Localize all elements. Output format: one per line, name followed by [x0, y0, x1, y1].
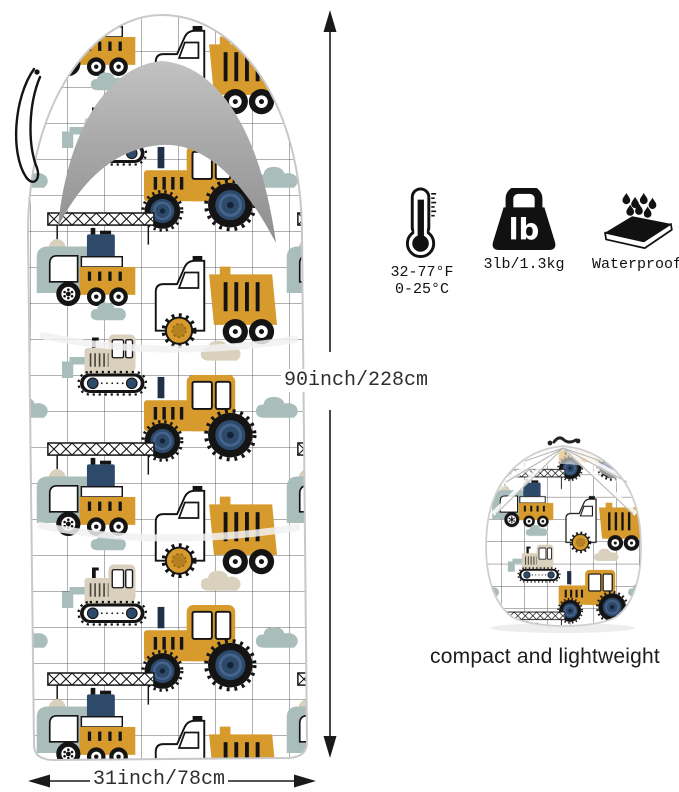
sleeping-bag-image [10, 5, 320, 767]
sack-drawstring-knot [554, 438, 576, 442]
drawstring-knot [34, 69, 39, 74]
temperature-range-f: 32-77°F [390, 264, 453, 281]
stuff-sack-image [478, 430, 648, 635]
weight-label: 3lb/1.3kg [478, 256, 570, 273]
waterproof-icon [598, 192, 676, 252]
temperature-feature: 32-77°F 0-25°C [383, 186, 461, 298]
waterproof-feature: Waterproof [591, 192, 679, 273]
waterproof-label: Waterproof [591, 256, 679, 273]
weight-feature: lb 3lb/1.3kg [478, 188, 570, 273]
weight-unit-text: lb [509, 212, 540, 246]
horizontal-dimension-label: 31inch/78cm [90, 768, 228, 791]
thermometer-icon [401, 186, 443, 260]
vertical-dimension-label: 90inch/228cm [281, 369, 431, 392]
weight-icon: lb [487, 188, 561, 252]
sack-caption: compact and lightweight [412, 645, 678, 669]
drawstring-cord [16, 69, 40, 182]
temperature-range-c: 0-25°C [395, 281, 449, 298]
